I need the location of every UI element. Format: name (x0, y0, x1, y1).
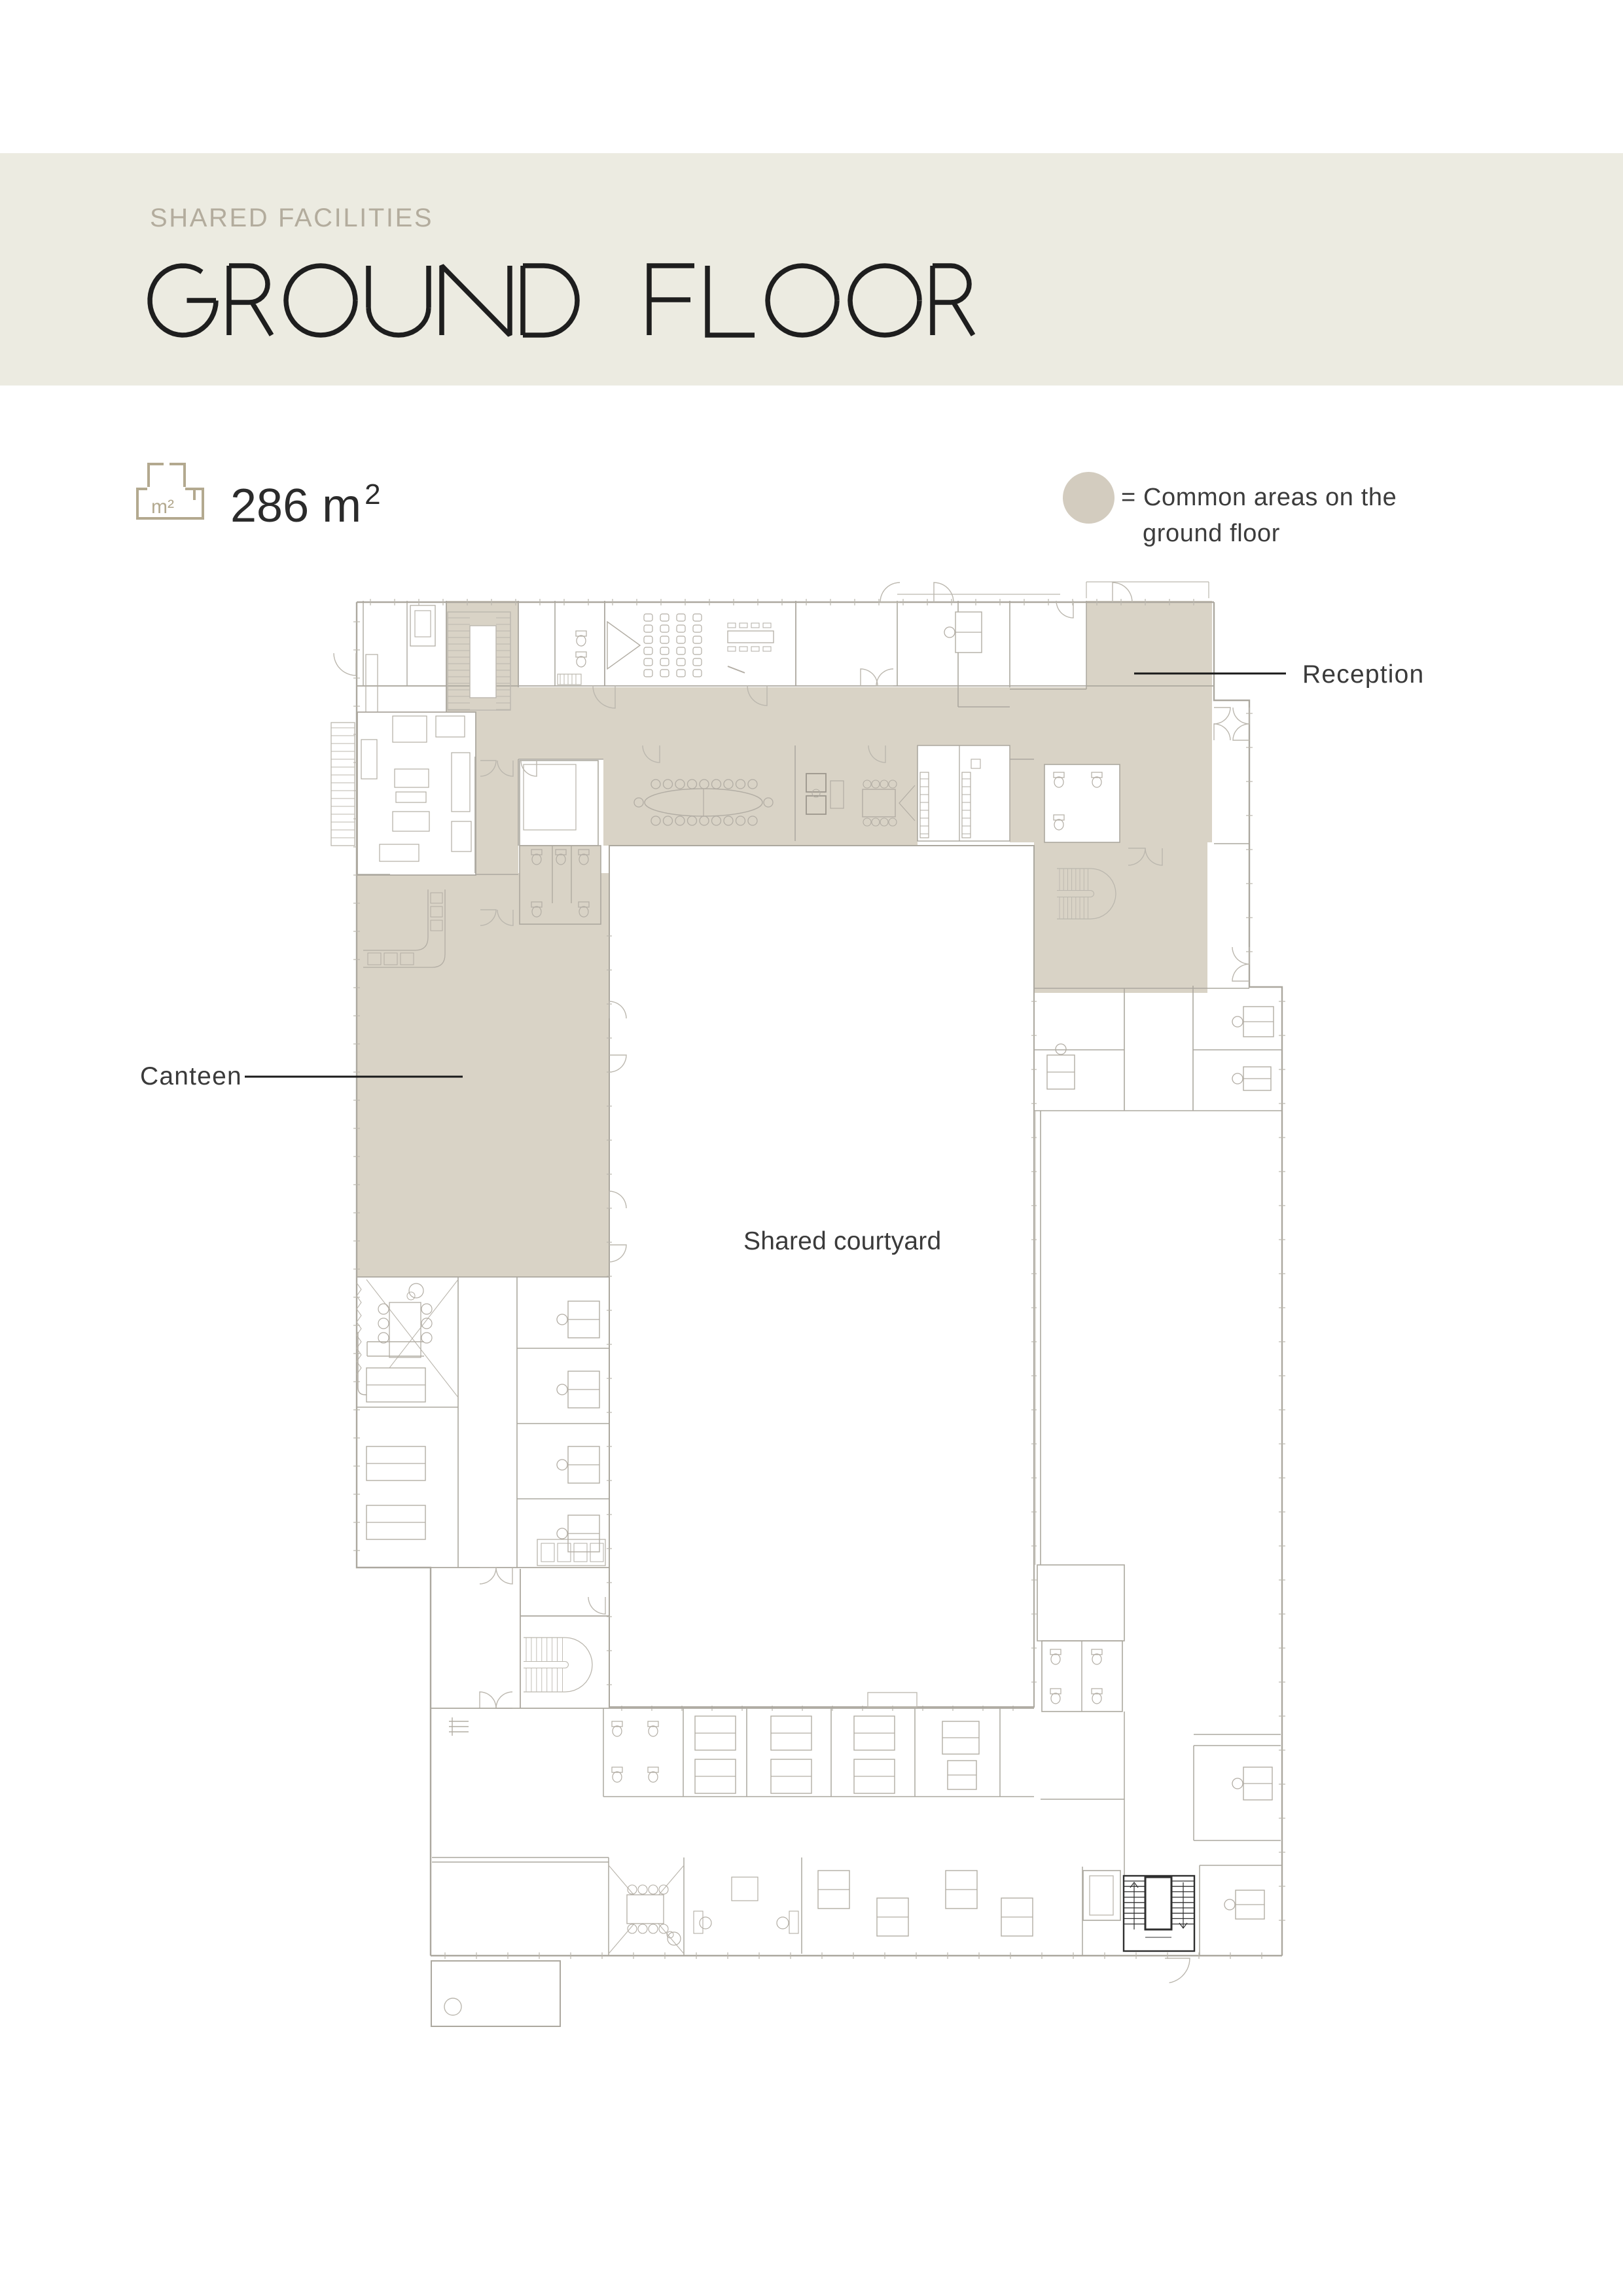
svg-text:Shared courtyard: Shared courtyard (743, 1227, 941, 1255)
svg-text:Canteen: Canteen (140, 1062, 242, 1090)
svg-text:Reception: Reception (1302, 660, 1424, 689)
